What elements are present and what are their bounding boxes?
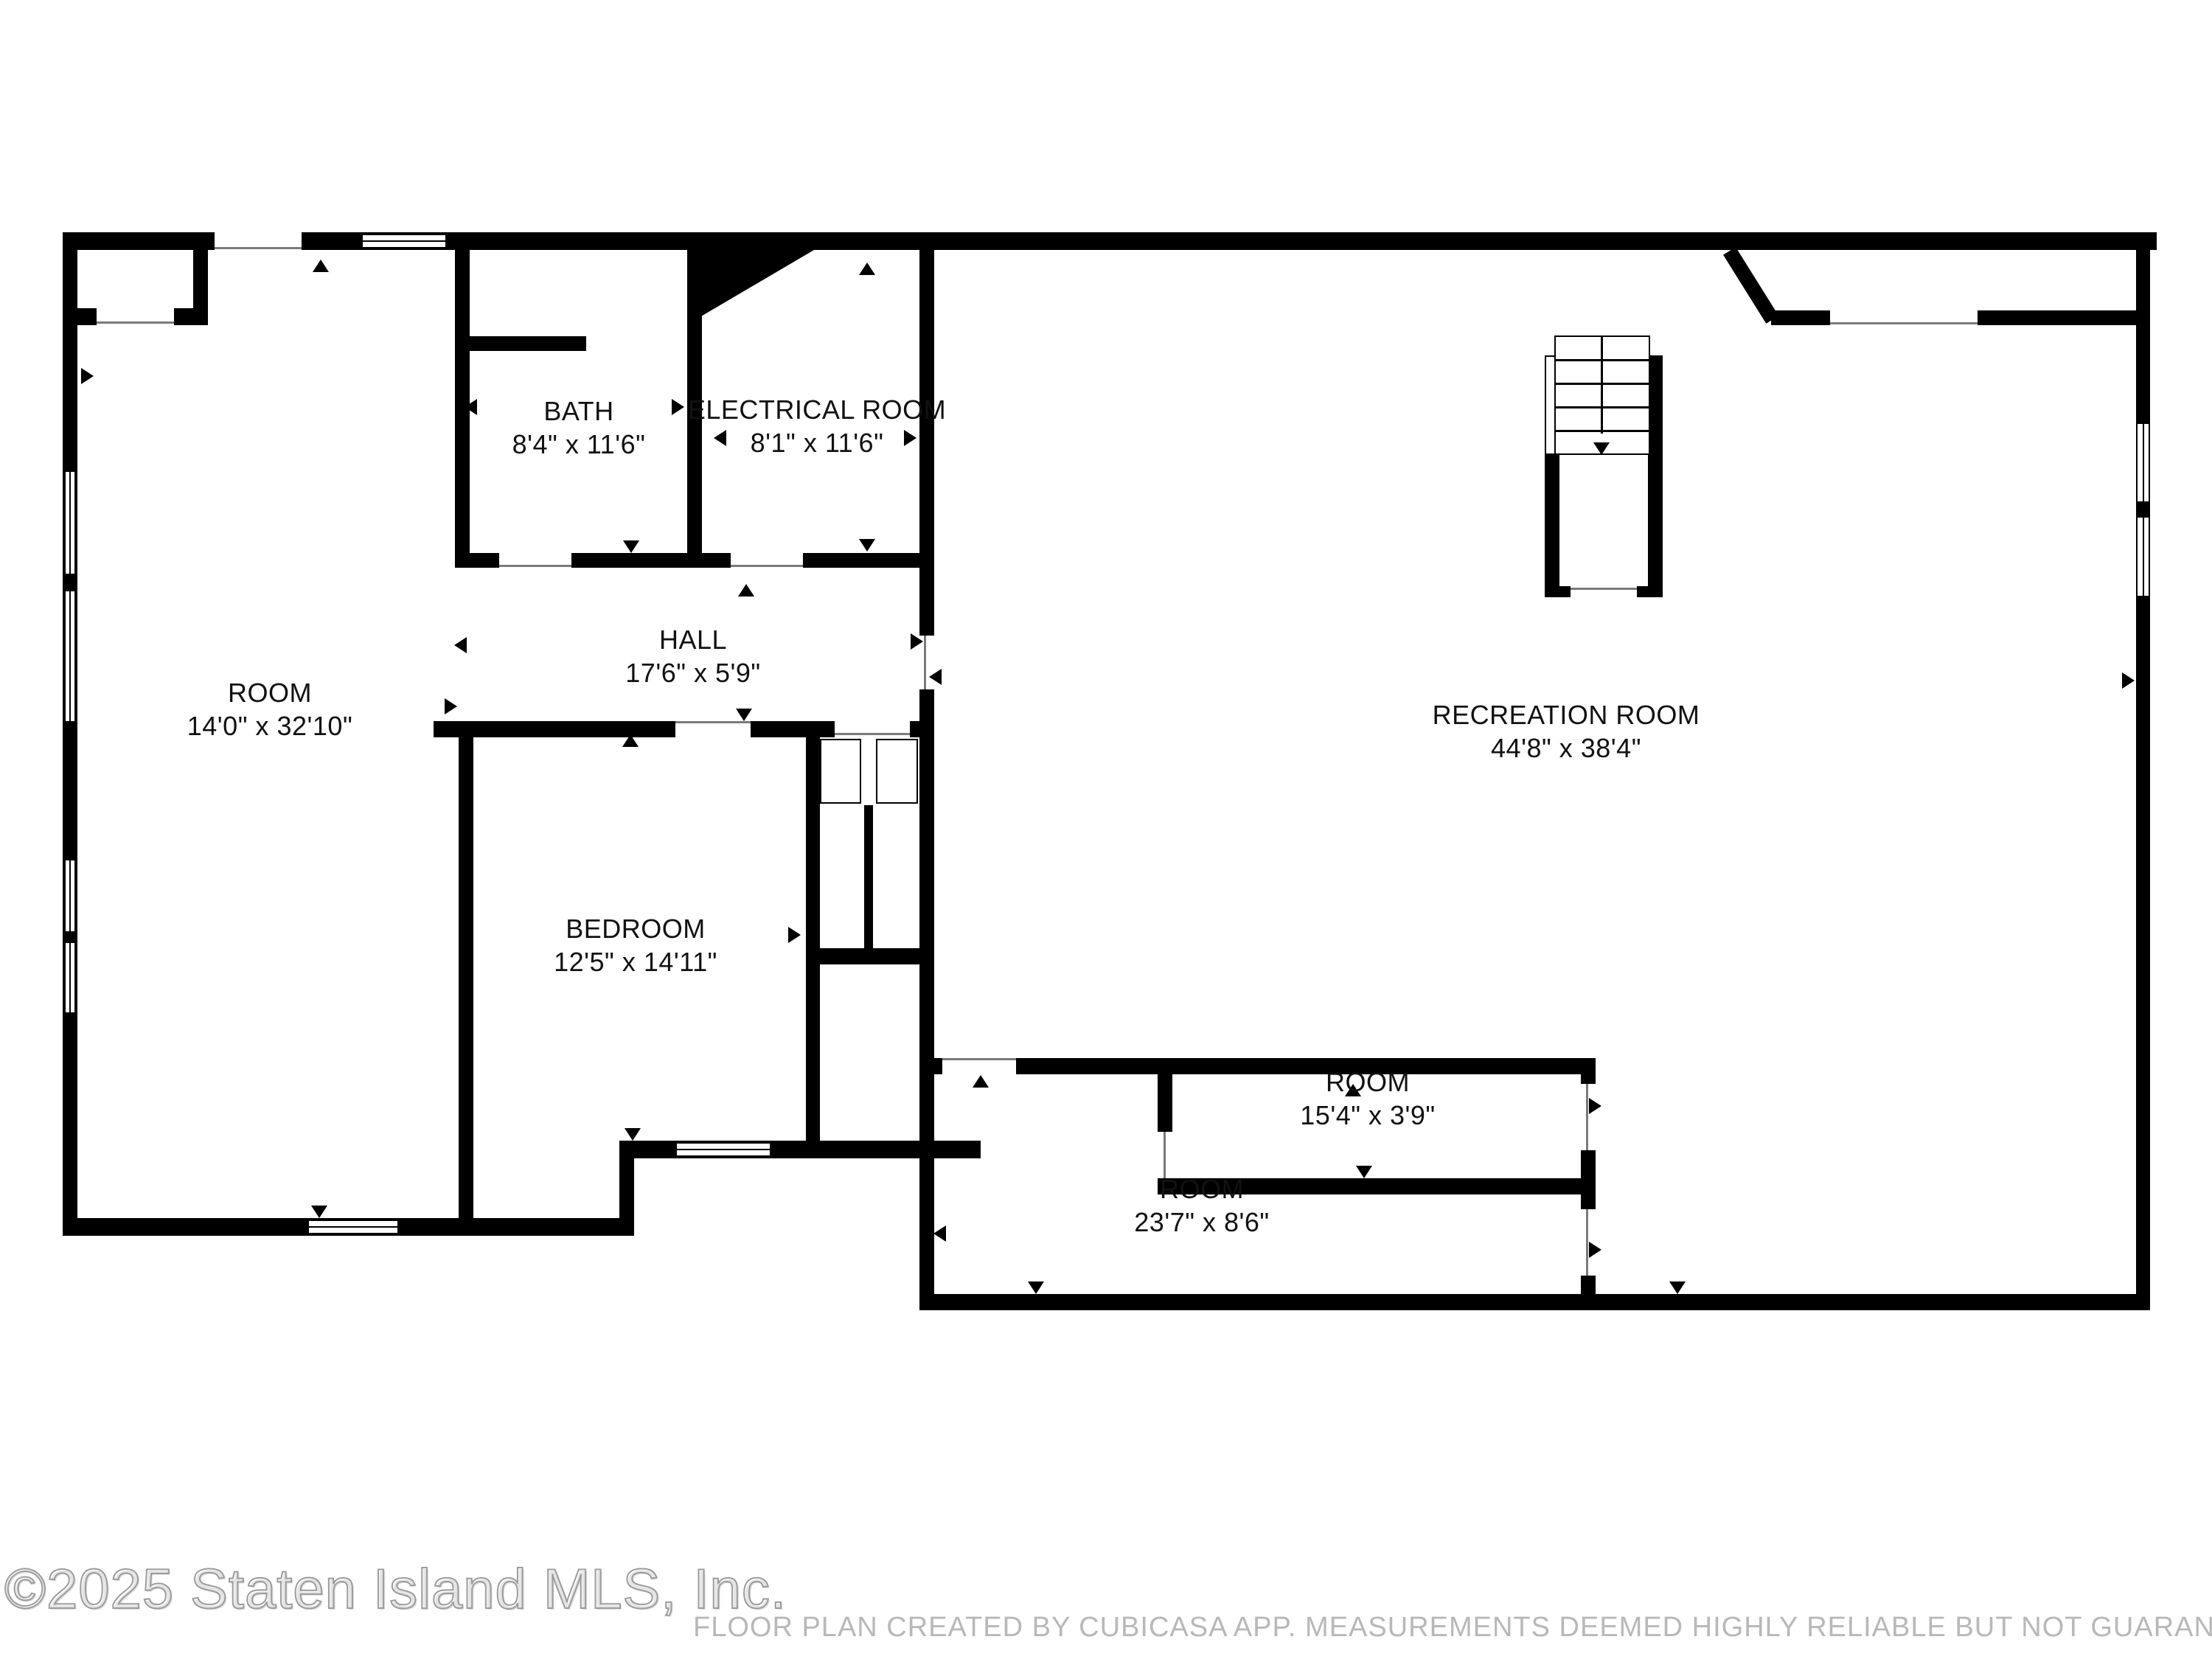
opening-line	[1571, 588, 1637, 590]
window-symbol	[675, 1142, 771, 1157]
opening-line	[675, 721, 751, 723]
room-dimensions: 12'5" x 14'11"	[554, 945, 717, 978]
window-symbol	[2136, 516, 2150, 597]
diagonal-wall	[1723, 247, 1778, 324]
direction-arrow-up-icon	[859, 262, 875, 275]
direction-arrow-down-icon	[1028, 1281, 1044, 1294]
direction-arrow-left-icon	[929, 669, 942, 685]
opening-line	[835, 733, 910, 735]
wall	[1545, 586, 1571, 597]
stairs-center-line	[1601, 335, 1603, 434]
direction-arrow-left-icon	[465, 399, 477, 415]
wall	[864, 805, 873, 957]
chamfer-wall	[689, 250, 814, 324]
closet-door-panel	[876, 739, 918, 804]
room-name: BEDROOM	[554, 912, 717, 945]
wall	[806, 737, 820, 1141]
direction-arrow-right-icon	[672, 399, 684, 415]
window-symbol	[64, 942, 76, 1014]
wall	[1978, 310, 2150, 325]
window-center-line	[2143, 518, 2144, 596]
opening-line	[97, 321, 174, 324]
window-center-line	[69, 943, 71, 1012]
window-symbol	[64, 859, 76, 933]
opening-line	[215, 247, 302, 249]
direction-arrow-up-icon	[738, 584, 754, 597]
room-dimensions: 44'8" x 38'4"	[1433, 731, 1700, 765]
wall	[77, 308, 97, 325]
opening-line	[1164, 1132, 1166, 1178]
window-center-line	[677, 1149, 770, 1150]
wall	[910, 721, 934, 737]
room-dimensions: 23'7" x 8'6"	[1134, 1206, 1269, 1239]
wall	[174, 308, 208, 325]
direction-arrow-right-icon	[788, 927, 801, 943]
door-opening-gap	[1581, 1084, 1596, 1150]
direction-arrow-down-icon	[859, 539, 875, 552]
window-symbol	[2136, 422, 2150, 503]
window-center-line	[69, 591, 71, 721]
wall	[459, 721, 473, 1236]
window-center-line	[363, 240, 445, 242]
wall	[1637, 586, 1663, 597]
wall	[936, 232, 2157, 250]
opening-line	[924, 636, 926, 689]
opening-line	[1830, 322, 1978, 324]
direction-arrow-right-icon	[445, 698, 457, 714]
room-label-room-small: ROOM15'4" x 3'9"	[1300, 1065, 1435, 1132]
wall	[2136, 232, 2150, 1310]
room-label-room-lower: ROOM23'7" x 8'6"	[1134, 1172, 1269, 1239]
room-name: ELECTRICAL ROOM	[688, 393, 946, 426]
direction-arrow-up-icon	[622, 734, 639, 747]
wall	[1158, 1074, 1172, 1132]
direction-arrow-up-icon	[973, 1075, 989, 1088]
room-label-hall: HALL17'6" x 5'9"	[625, 623, 760, 689]
room-name: RECREATION ROOM	[1433, 698, 1700, 731]
opening-line	[1586, 1084, 1588, 1150]
room-label-bath: BATH8'4" x 11'6"	[512, 394, 646, 461]
direction-arrow-down-icon	[623, 540, 639, 553]
room-label-room-left: ROOM14'0" x 32'10"	[187, 676, 352, 742]
room-name: ROOM	[1134, 1172, 1269, 1206]
direction-arrow-right-icon	[1589, 1098, 1601, 1114]
direction-arrow-right-icon	[2122, 672, 2135, 689]
door-opening-gap	[675, 721, 751, 737]
direction-arrow-down-icon	[1669, 1281, 1686, 1294]
window-symbol	[64, 470, 76, 575]
room-label-recreation-room: RECREATION ROOM44'8" x 38'4"	[1433, 698, 1700, 765]
direction-arrow-left-icon	[933, 1225, 946, 1242]
floor-plan: BATH8'4" x 11'6"ELECTRICAL ROOM8'1" x 11…	[0, 0, 2212, 1659]
window-symbol	[361, 234, 447, 248]
room-label-bedroom: BEDROOM12'5" x 14'11"	[554, 912, 717, 978]
window-center-line	[2143, 424, 2144, 501]
direction-arrow-down-icon	[1356, 1166, 1372, 1178]
room-dimensions: 8'1" x 11'6"	[688, 426, 946, 459]
door-opening-gap	[942, 1058, 1016, 1074]
closet-door-panel	[820, 739, 861, 804]
window-center-line	[309, 1226, 397, 1228]
room-dimensions: 8'4" x 11'6"	[512, 428, 646, 461]
room-name: BATH	[512, 394, 646, 428]
wall	[814, 948, 934, 964]
opening-line	[942, 1058, 1016, 1060]
room-dimensions: 17'6" x 5'9"	[625, 656, 760, 689]
room-name: HALL	[625, 623, 760, 656]
direction-arrow-right-icon	[81, 368, 94, 384]
wall	[919, 1294, 2150, 1310]
window-center-line	[69, 860, 71, 931]
direction-arrow-down-icon	[736, 709, 752, 721]
wall	[619, 1141, 634, 1236]
watermark: ©2025 Staten Island MLS, Inc.	[4, 1557, 787, 1621]
room-name: ROOM	[187, 676, 352, 709]
opening-line	[731, 565, 803, 567]
wall	[1545, 455, 1559, 597]
direction-arrow-down-icon	[311, 1206, 327, 1218]
wall	[63, 232, 77, 1236]
footer-disclaimer: FLOOR PLAN CREATED BY CUBICASA APP. MEAS…	[693, 1612, 2212, 1644]
room-label-electrical-room: ELECTRICAL ROOM8'1" x 11'6"	[688, 393, 946, 459]
room-dimensions: 15'4" x 3'9"	[1300, 1099, 1435, 1132]
opening-line	[1586, 1209, 1588, 1276]
wall	[1771, 310, 1830, 325]
direction-arrow-up-icon	[313, 260, 329, 272]
window-symbol	[307, 1220, 399, 1234]
window-center-line	[69, 472, 71, 574]
room-name: ROOM	[1300, 1065, 1435, 1099]
wall	[470, 336, 586, 351]
direction-arrow-down-icon	[625, 1128, 641, 1141]
wall	[1648, 355, 1663, 597]
room-dimensions: 14'0" x 32'10"	[187, 709, 352, 742]
direction-arrow-left-icon	[454, 637, 467, 653]
opening-line	[499, 565, 571, 567]
wall	[919, 1058, 1596, 1074]
window-symbol	[64, 590, 76, 723]
direction-arrow-down-icon	[1593, 442, 1610, 455]
direction-arrow-right-icon	[911, 633, 923, 650]
direction-arrow-right-icon	[1589, 1242, 1601, 1258]
wall	[63, 232, 936, 250]
